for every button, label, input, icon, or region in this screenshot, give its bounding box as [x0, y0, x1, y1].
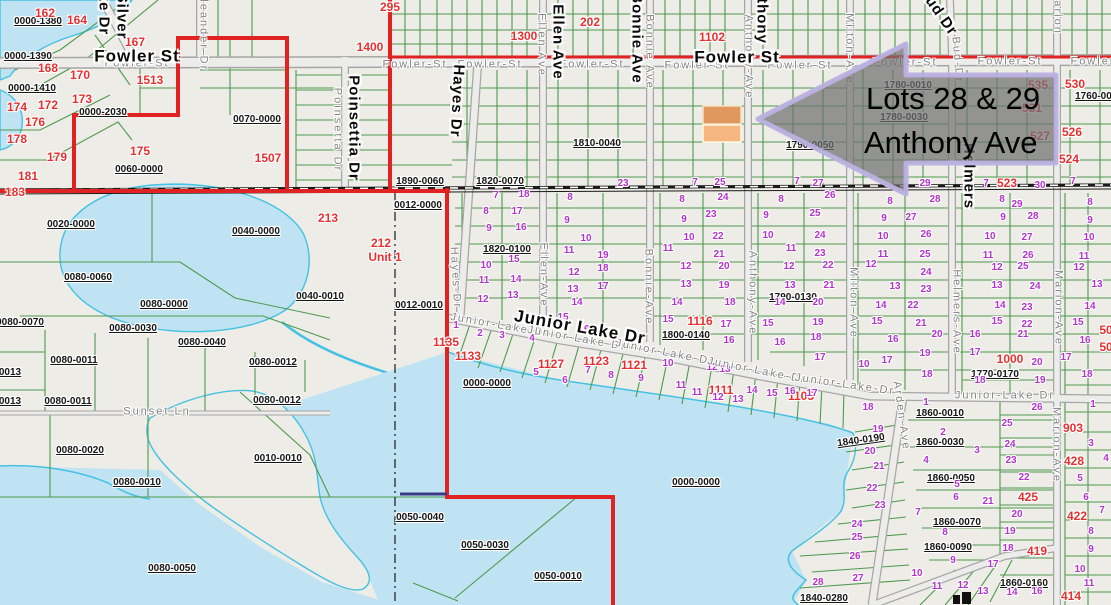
street-name-label: Milton-Ave: [844, 13, 855, 85]
address-label: 181: [18, 170, 38, 182]
lot-number-label: 14: [994, 301, 1005, 311]
lot-number-label: 16: [887, 335, 898, 345]
street-name-label: Oleander-Dr: [198, 0, 209, 71]
lot-number-label: 10: [762, 231, 773, 241]
street-name-label: Poinsettia Dr: [347, 75, 362, 181]
address-label: 1133: [455, 350, 481, 362]
lot-number-label: 17: [511, 207, 522, 217]
parcel-id-label: 0080-0012: [249, 358, 297, 368]
parcel-id-label: 1790-0050: [786, 141, 834, 151]
lot-number-label: 25: [851, 533, 862, 543]
lot-number-label: 15: [662, 315, 673, 325]
lot-number-label: 21: [713, 250, 724, 260]
lot-number-label: 9: [950, 556, 956, 566]
parcel-id-label: 1780-0030: [880, 113, 928, 123]
lot-number-label: 18: [518, 190, 529, 200]
lot-number-label: 12: [712, 393, 723, 403]
lot-number-label: 14: [875, 301, 886, 311]
parcel-id-label: 0013: [0, 368, 21, 378]
lot-number-label: 1: [923, 398, 929, 408]
lot-number-label: 12: [783, 262, 794, 272]
lot-number-label: 26: [1031, 403, 1042, 413]
street-name-label: Bonnie Ave: [630, 0, 645, 84]
address-label: 1513: [137, 74, 164, 86]
parcel-id-label: 0080-0010: [113, 478, 161, 488]
lot-number-label: 25: [714, 178, 725, 188]
lot-number-label: 14: [1084, 302, 1095, 312]
lot-number-label: 23: [814, 249, 825, 259]
lot-number-label: 20: [1031, 358, 1042, 368]
parcel-id-label: 0013: [0, 397, 21, 407]
lot-number-label: 21: [873, 462, 884, 472]
lot-number-label: 20: [931, 330, 942, 340]
lot-number-label: 12: [477, 295, 488, 305]
parcel-id-label: 0000-0000: [463, 379, 511, 389]
lot-number-label: 15: [871, 317, 882, 327]
parcel-id-label: 0060-0000: [115, 165, 163, 175]
lot-number-label: 16: [723, 336, 734, 346]
lot-number-label: 7: [1070, 177, 1076, 187]
lot-number-label: 29: [919, 179, 930, 189]
map-canvas[interactable]: 0000-13800000-13900000-14100000-20300070…: [0, 0, 1111, 605]
address-label: 1400: [357, 41, 384, 53]
lot-number-label: 18: [597, 264, 608, 274]
lot-number-label: 24: [1029, 282, 1040, 292]
street-name-label: Fowler St: [94, 48, 180, 65]
lot-number-label: 13: [991, 281, 1002, 291]
address-label: 202: [580, 16, 600, 28]
parcel-id-label: 0040-0010: [296, 292, 344, 302]
address-label: 172: [38, 99, 58, 111]
address-label: 213: [318, 212, 338, 224]
street-name-label: Sunset Ln: [123, 407, 191, 418]
lot-number-label: 11: [676, 381, 687, 391]
lot-number-label: 23: [1005, 456, 1016, 466]
lot-number-label: 8: [679, 195, 685, 205]
lot-number-label: 11: [878, 250, 889, 260]
parcel-id-label: 0050-0010: [534, 572, 582, 582]
lot-number-label: 8: [608, 371, 614, 381]
lot-number-label: 18: [974, 376, 985, 386]
address-label: 526: [1062, 126, 1082, 138]
lot-number-label: 22: [907, 301, 918, 311]
lot-number-label: 17: [806, 389, 817, 399]
lot-number-label: 5: [533, 368, 539, 378]
address-label: 414: [1061, 590, 1081, 602]
lot-number-label: 12: [865, 260, 876, 270]
parcel-id-label: 0000-1410: [8, 84, 56, 94]
address-label: 419: [1027, 545, 1047, 557]
lot-number-label: 15: [508, 255, 519, 265]
lot-number-label: 21: [823, 281, 834, 291]
lot-number-label: 27: [1021, 233, 1032, 243]
lot-number-label: 12: [568, 268, 579, 278]
parcel-id-label: 0000-0000: [672, 478, 720, 488]
parcel-id-label: 0080-0012: [253, 396, 301, 406]
lot-number-label: 22: [822, 261, 833, 271]
address-label: 50: [1099, 341, 1111, 353]
address-label: 1300: [511, 30, 538, 42]
lot-number-label: 17: [814, 353, 825, 363]
lot-number-label: 30: [1034, 181, 1045, 191]
lot-number-label: 8: [483, 207, 489, 217]
parcel-id-label: 1760-0010: [1075, 92, 1111, 102]
lot-number-label: 10: [1083, 233, 1094, 243]
parcel-id-label: 1800-0140: [662, 331, 710, 341]
lot-number-label: 4: [923, 456, 929, 466]
lot-number-label: 20: [718, 262, 729, 272]
address-label: 176: [25, 116, 45, 128]
lot-number-label: 9: [681, 215, 687, 225]
lot-number-label: 18: [724, 298, 735, 308]
lot-number-label: 13: [680, 280, 691, 290]
lot-number-label: 25: [809, 209, 820, 219]
lot-number-label: 21: [915, 319, 926, 329]
lot-number-label: 18: [810, 333, 821, 343]
address-label: Unit 1: [368, 251, 401, 263]
lot-number-label: 19: [718, 281, 729, 291]
lot-number-label: 7: [585, 366, 591, 376]
lot-number-label: 18: [921, 370, 932, 380]
lot-number-label: 10: [877, 232, 888, 242]
address-label: 422: [1067, 510, 1087, 522]
lot-number-label: 21: [1017, 330, 1028, 340]
parcel-id-label: 1810-0040: [573, 139, 621, 149]
parcel-id-label: 0012-0010: [395, 301, 443, 311]
parcel-id-label: 1780-0010: [884, 81, 932, 91]
parcel-id-label: 0010-0010: [254, 454, 302, 464]
street-name-label: Fowler-St: [382, 60, 447, 71]
lot-number-label: 10: [858, 360, 869, 370]
lot-number-label: 9: [1087, 216, 1093, 226]
parcel-id-label: 1860-0070: [933, 518, 981, 528]
street-name-label: Ellen-Ave: [538, 243, 549, 308]
lot-number-label: 19: [872, 425, 883, 435]
street-name-label: Fowler-St: [977, 57, 1042, 68]
address-label: 1000: [997, 353, 1024, 365]
street-name-label: Anthony-Ave: [747, 251, 758, 336]
lot-number-label: 22: [866, 484, 877, 494]
lot-number-label: 16: [1031, 587, 1042, 597]
parcel-id-label: 0080-0011: [50, 356, 97, 366]
address-label: 535: [1028, 79, 1048, 91]
lot-number-label: 26: [1022, 251, 1033, 261]
lot-number-label: 7: [794, 177, 800, 187]
lot-number-label: 29: [1011, 200, 1022, 210]
lot-number-label: 5: [1077, 474, 1083, 484]
address-label: 295: [380, 1, 400, 13]
lot-number-label: 6: [1083, 493, 1089, 503]
lot-number-label: 9: [881, 214, 887, 224]
lot-number-label: 19: [1034, 376, 1045, 386]
street-name-label: Ellen Ave: [536, 13, 547, 77]
address-label: 179: [47, 151, 67, 163]
lot-number-label: 14: [671, 298, 682, 308]
lot-number-label: 9: [638, 374, 644, 384]
lot-number-label: 28: [929, 195, 940, 205]
lot-number-label: 9: [1088, 545, 1094, 555]
lot-number-label: 11: [1084, 579, 1095, 589]
address-label: 531: [1022, 102, 1042, 114]
address-label: 183: [5, 186, 25, 198]
lot-number-label: 11: [564, 246, 575, 256]
address-label: 1121: [621, 359, 647, 371]
parcel-id-label: 1860-0010: [916, 409, 964, 419]
lot-number-label: 9: [1000, 213, 1006, 223]
address-label: 168: [38, 62, 58, 74]
lot-number-label: 15: [766, 389, 777, 399]
lot-number-label: 19: [597, 251, 608, 261]
address-label: 903: [1063, 422, 1083, 434]
lot-number-label: 2: [940, 428, 946, 438]
lot-number-label: 3: [1088, 439, 1094, 449]
address-label: 178: [7, 133, 27, 145]
lot-number-label: 12: [1073, 263, 1084, 273]
lot-number-label: 2: [477, 329, 483, 339]
address-label: 425: [1018, 491, 1038, 503]
highlighted-lots: [703, 106, 741, 142]
lot-number-label: 7: [692, 178, 698, 188]
lot-number-label: 11: [692, 388, 703, 398]
parcel-id-label: 0080-0070: [0, 318, 44, 328]
parcel-id-label: 1820-0070: [476, 177, 524, 187]
parcel-id-label: 0000-2030: [79, 108, 127, 118]
lot-number-label: 24: [717, 193, 728, 203]
lot-number-label: 7: [1099, 506, 1105, 516]
lot-number-label: 12: [680, 262, 691, 272]
lot-number-label: 6: [953, 493, 959, 503]
lot-number-label: 12: [957, 581, 968, 591]
address-label: 212: [371, 237, 391, 249]
parcel-id-label: 0080-0030: [109, 324, 157, 334]
lot-number-label: 12: [991, 263, 1002, 273]
lot-number-label: 16: [1079, 336, 1090, 346]
address-label: 523: [997, 177, 1017, 189]
lot-number-label: 14: [774, 298, 785, 308]
lot-number-label: 17: [720, 320, 731, 330]
parcel-id-label: 1840-0280: [800, 594, 848, 604]
lot-number-label: 10: [662, 359, 673, 369]
lot-number-label: 25: [1017, 262, 1028, 272]
lot-number-label: 7: [915, 508, 921, 518]
lot-number-label: 8: [942, 528, 948, 538]
parcel-id-label: 0080-0020: [56, 446, 104, 456]
parcel-id-label: 1860-0050: [927, 474, 975, 484]
lot-number-label: 19: [1004, 527, 1015, 537]
lot-number-label: 5: [954, 480, 960, 490]
address-label: 530: [1065, 78, 1085, 90]
parcel-id-label: 0080-0060: [64, 273, 112, 283]
street-name-label: Fowler St: [694, 49, 780, 66]
lot-number-label: 7: [493, 191, 499, 201]
lot-number-label: 16: [784, 387, 795, 397]
lot-number-label: 23: [874, 501, 885, 511]
parcel-id-label: 0050-0040: [396, 513, 444, 523]
lot-number-label: 15: [991, 317, 1002, 327]
lot-number-label: 11: [1079, 252, 1090, 262]
street-name-label: Anthony: [755, 0, 770, 44]
lot-number-label: 16: [969, 330, 980, 340]
lot-number-label: 15: [1072, 318, 1083, 328]
lot-number-label: 9: [486, 224, 492, 234]
address-label: 162: [35, 7, 55, 19]
lot-number-label: 28: [1027, 212, 1038, 222]
street-name-label: Junior-Lake Dr: [955, 391, 1055, 402]
lot-number-label: 18: [1081, 370, 1092, 380]
street-name-label: Marion: [1052, 0, 1063, 35]
lot-number-label: 13: [784, 281, 795, 291]
street-name-label: Hayes-Dr: [448, 247, 462, 310]
address-label: 50: [1099, 324, 1111, 336]
lot-number-label: 8: [999, 195, 1005, 205]
lot-number-label: 14: [746, 386, 757, 396]
lot-number-label: 23: [1021, 303, 1032, 313]
lot-number-label: 17: [969, 348, 980, 358]
lot-number-label: 13: [507, 291, 518, 301]
address-label: 1135: [433, 336, 459, 348]
lot-number-label: 11: [786, 244, 797, 254]
parcel-id-label: 1820-0100: [483, 245, 531, 255]
lot-number-label: 17: [881, 356, 892, 366]
address-label: 1507: [255, 152, 282, 164]
lot-number-label: 24: [920, 268, 931, 278]
address-label: 175: [130, 145, 150, 157]
lot-number-label: 15: [762, 319, 773, 329]
lot-number-label: 22: [712, 232, 723, 242]
parcel-id-label: 0080-0050: [148, 564, 196, 574]
lot-number-label: 19: [812, 318, 823, 328]
lot-number-label: 14: [510, 275, 521, 285]
street-name-label: Marion-Ave: [1053, 270, 1064, 346]
street-name-label: Milton-Ave: [848, 267, 859, 339]
lot-number-label: 13: [889, 282, 900, 292]
street-name-label: Helmers: [962, 143, 977, 209]
lot-number-label: 3: [499, 331, 505, 341]
street-name-label: Marion-Ave: [1051, 407, 1062, 483]
parcel-id-label: 1860-0030: [916, 438, 964, 448]
lot-number-label: 8: [887, 197, 893, 207]
lot-number-label: 13: [732, 395, 743, 405]
lot-number-label: 14: [571, 298, 582, 308]
lot-number-label: 1: [1090, 400, 1096, 410]
street-name-label: Ellen Ave: [551, 4, 566, 79]
address-label: 174: [7, 101, 27, 113]
street-name-label: Hayes Dr: [448, 64, 467, 138]
lot-number-label: 11: [932, 582, 943, 592]
street-name-label: Fowler-St: [1070, 57, 1111, 68]
street-name-label: Helmers-Ave: [951, 269, 962, 354]
lot-number-label: 23: [920, 285, 931, 295]
lot-number-label: 16: [515, 223, 526, 233]
street-name-label: Fowler-St: [872, 58, 937, 69]
lot-number-label: 25: [919, 250, 930, 260]
address-label: 164: [67, 14, 87, 26]
parcel-id-label: 1890-0060: [396, 177, 444, 187]
lot-number-label: 8: [1088, 527, 1094, 537]
lot-number-label: 6: [562, 376, 568, 386]
lot-number-label: 11: [983, 251, 994, 261]
lot-number-label: 20: [1011, 510, 1022, 520]
address-label: 1116: [687, 315, 712, 327]
street-name-label: Bonnie-Ave: [643, 249, 654, 326]
lot-number-label: 8: [1087, 198, 1093, 208]
lot-number-label: 8: [567, 193, 573, 203]
lot-number-label: 27: [812, 179, 823, 189]
lot-number-label: 4: [1103, 454, 1109, 464]
lot-number-label: 9: [763, 211, 769, 221]
lot-number-label: 19: [919, 349, 930, 359]
address-label: 173: [72, 93, 92, 105]
street-name-label: Silver: [115, 0, 130, 39]
street-name-label: ke Dr: [97, 0, 112, 35]
parcel-id-label: 0080-0000: [140, 300, 188, 310]
parcel-id-label: 0070-0000: [233, 115, 281, 125]
parcel-id-label: 0080-0040: [178, 338, 226, 348]
lot-number-label: 10: [1074, 565, 1085, 575]
lot-number-label: 3: [974, 446, 980, 456]
address-label: 524: [1059, 153, 1079, 165]
lot-number-label: 17: [597, 282, 608, 292]
lot-number-label: 27: [852, 574, 863, 584]
lot-number-label: 13: [977, 587, 988, 597]
lot-number-label: 18: [1002, 544, 1013, 554]
street-name-label: Poinsetta Dr: [332, 88, 343, 173]
lot-number-label: 16: [774, 338, 785, 348]
lot-number-label: 23: [617, 179, 628, 189]
lot-number-label: 11: [479, 276, 490, 286]
lot-number-label: 25: [1001, 419, 1012, 429]
lot-number-label: 13: [567, 285, 578, 295]
lot-number-label: 10: [911, 569, 922, 579]
parcel-id-label: 0040-0000: [232, 227, 280, 237]
parcel-id-label: 0012-0000: [394, 201, 442, 211]
lot-number-label: 8: [778, 195, 784, 205]
lot-number-label: 18: [862, 403, 873, 413]
address-label: 1127: [538, 358, 564, 370]
lot-number-label: 27: [905, 213, 916, 223]
lot-number-label: 10: [580, 234, 591, 244]
lot-number-label: 24: [814, 231, 825, 241]
lot-number-label: 24: [1004, 440, 1015, 450]
lot-number-label: 28: [812, 578, 823, 588]
lot-number-label: 26: [920, 230, 931, 240]
parcel-id-label: 0080-0011: [44, 397, 91, 407]
lot-number-label: 23: [705, 210, 716, 220]
address-label: 527: [1030, 130, 1050, 142]
lot-number-label: 22: [1018, 473, 1029, 483]
lot-number-label: 17: [1060, 353, 1071, 363]
lot-number-label: 10: [683, 233, 694, 243]
lot-number-label: 26: [849, 552, 860, 562]
lot-number-label: 10: [984, 232, 995, 242]
parcel-id-label: 1860-0090: [924, 543, 972, 553]
lot-number-label: 20: [812, 298, 823, 308]
lot-number-label: 21: [982, 497, 993, 507]
lot-number-label: 14: [1006, 588, 1017, 598]
lot-number-label: 24: [851, 520, 862, 530]
lot-number-label: 9: [564, 216, 570, 226]
lot-number-label: 17: [987, 560, 998, 570]
parcel-id-label: 0020-0000: [47, 220, 95, 230]
lot-number-label: 20: [864, 447, 875, 457]
address-label: 170: [70, 69, 90, 81]
lot-number-label: 11: [663, 244, 674, 254]
lot-number-label: 7: [983, 179, 989, 189]
lot-number-label: 26: [824, 191, 835, 201]
address-label: 428: [1064, 455, 1084, 467]
parcel-id-label: 0050-0030: [461, 541, 509, 551]
lot-number-label: 10: [480, 261, 491, 271]
